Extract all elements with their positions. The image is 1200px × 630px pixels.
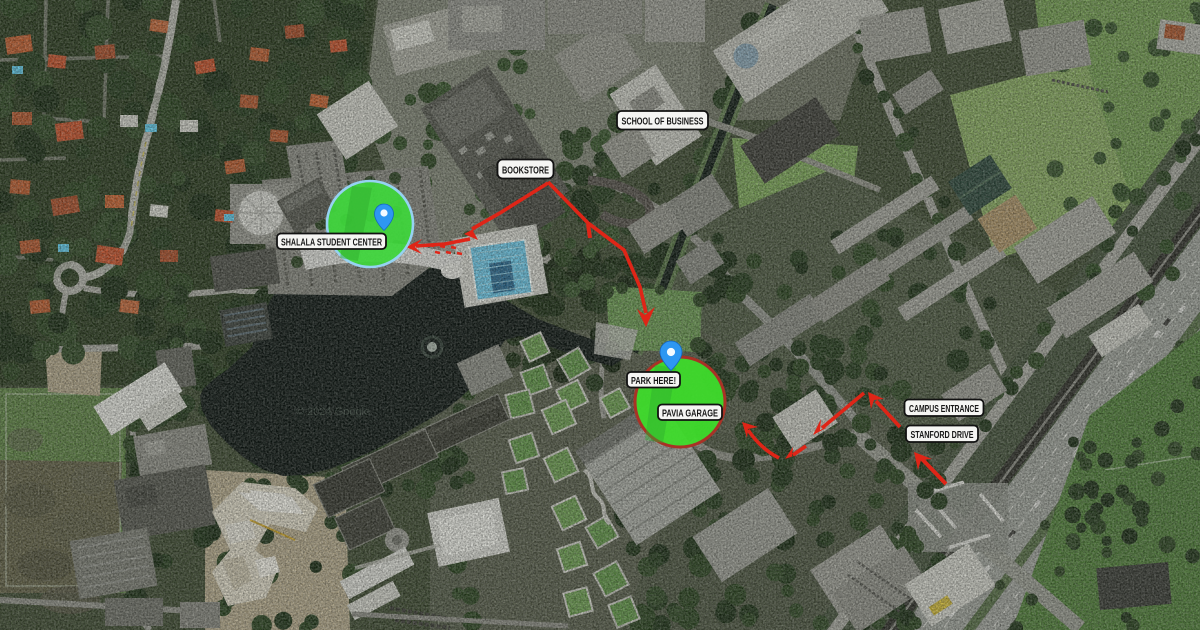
svg-text:SCHOOL OF BUSINESS: SCHOOL OF BUSINESS [622,117,704,128]
svg-text:PARK HERE!: PARK HERE! [631,376,676,387]
svg-text:CAMPUS ENTRANCE: CAMPUS ENTRANCE [909,404,979,415]
svg-text:PAVIA GARAGE: PAVIA GARAGE [662,408,718,419]
svg-text:BOOKSTORE: BOOKSTORE [502,165,549,177]
svg-text:STANFORD DRIVE: STANFORD DRIVE [911,430,974,441]
svg-text:SHALALA STUDENT CENTER: SHALALA STUDENT CENTER [281,237,383,248]
